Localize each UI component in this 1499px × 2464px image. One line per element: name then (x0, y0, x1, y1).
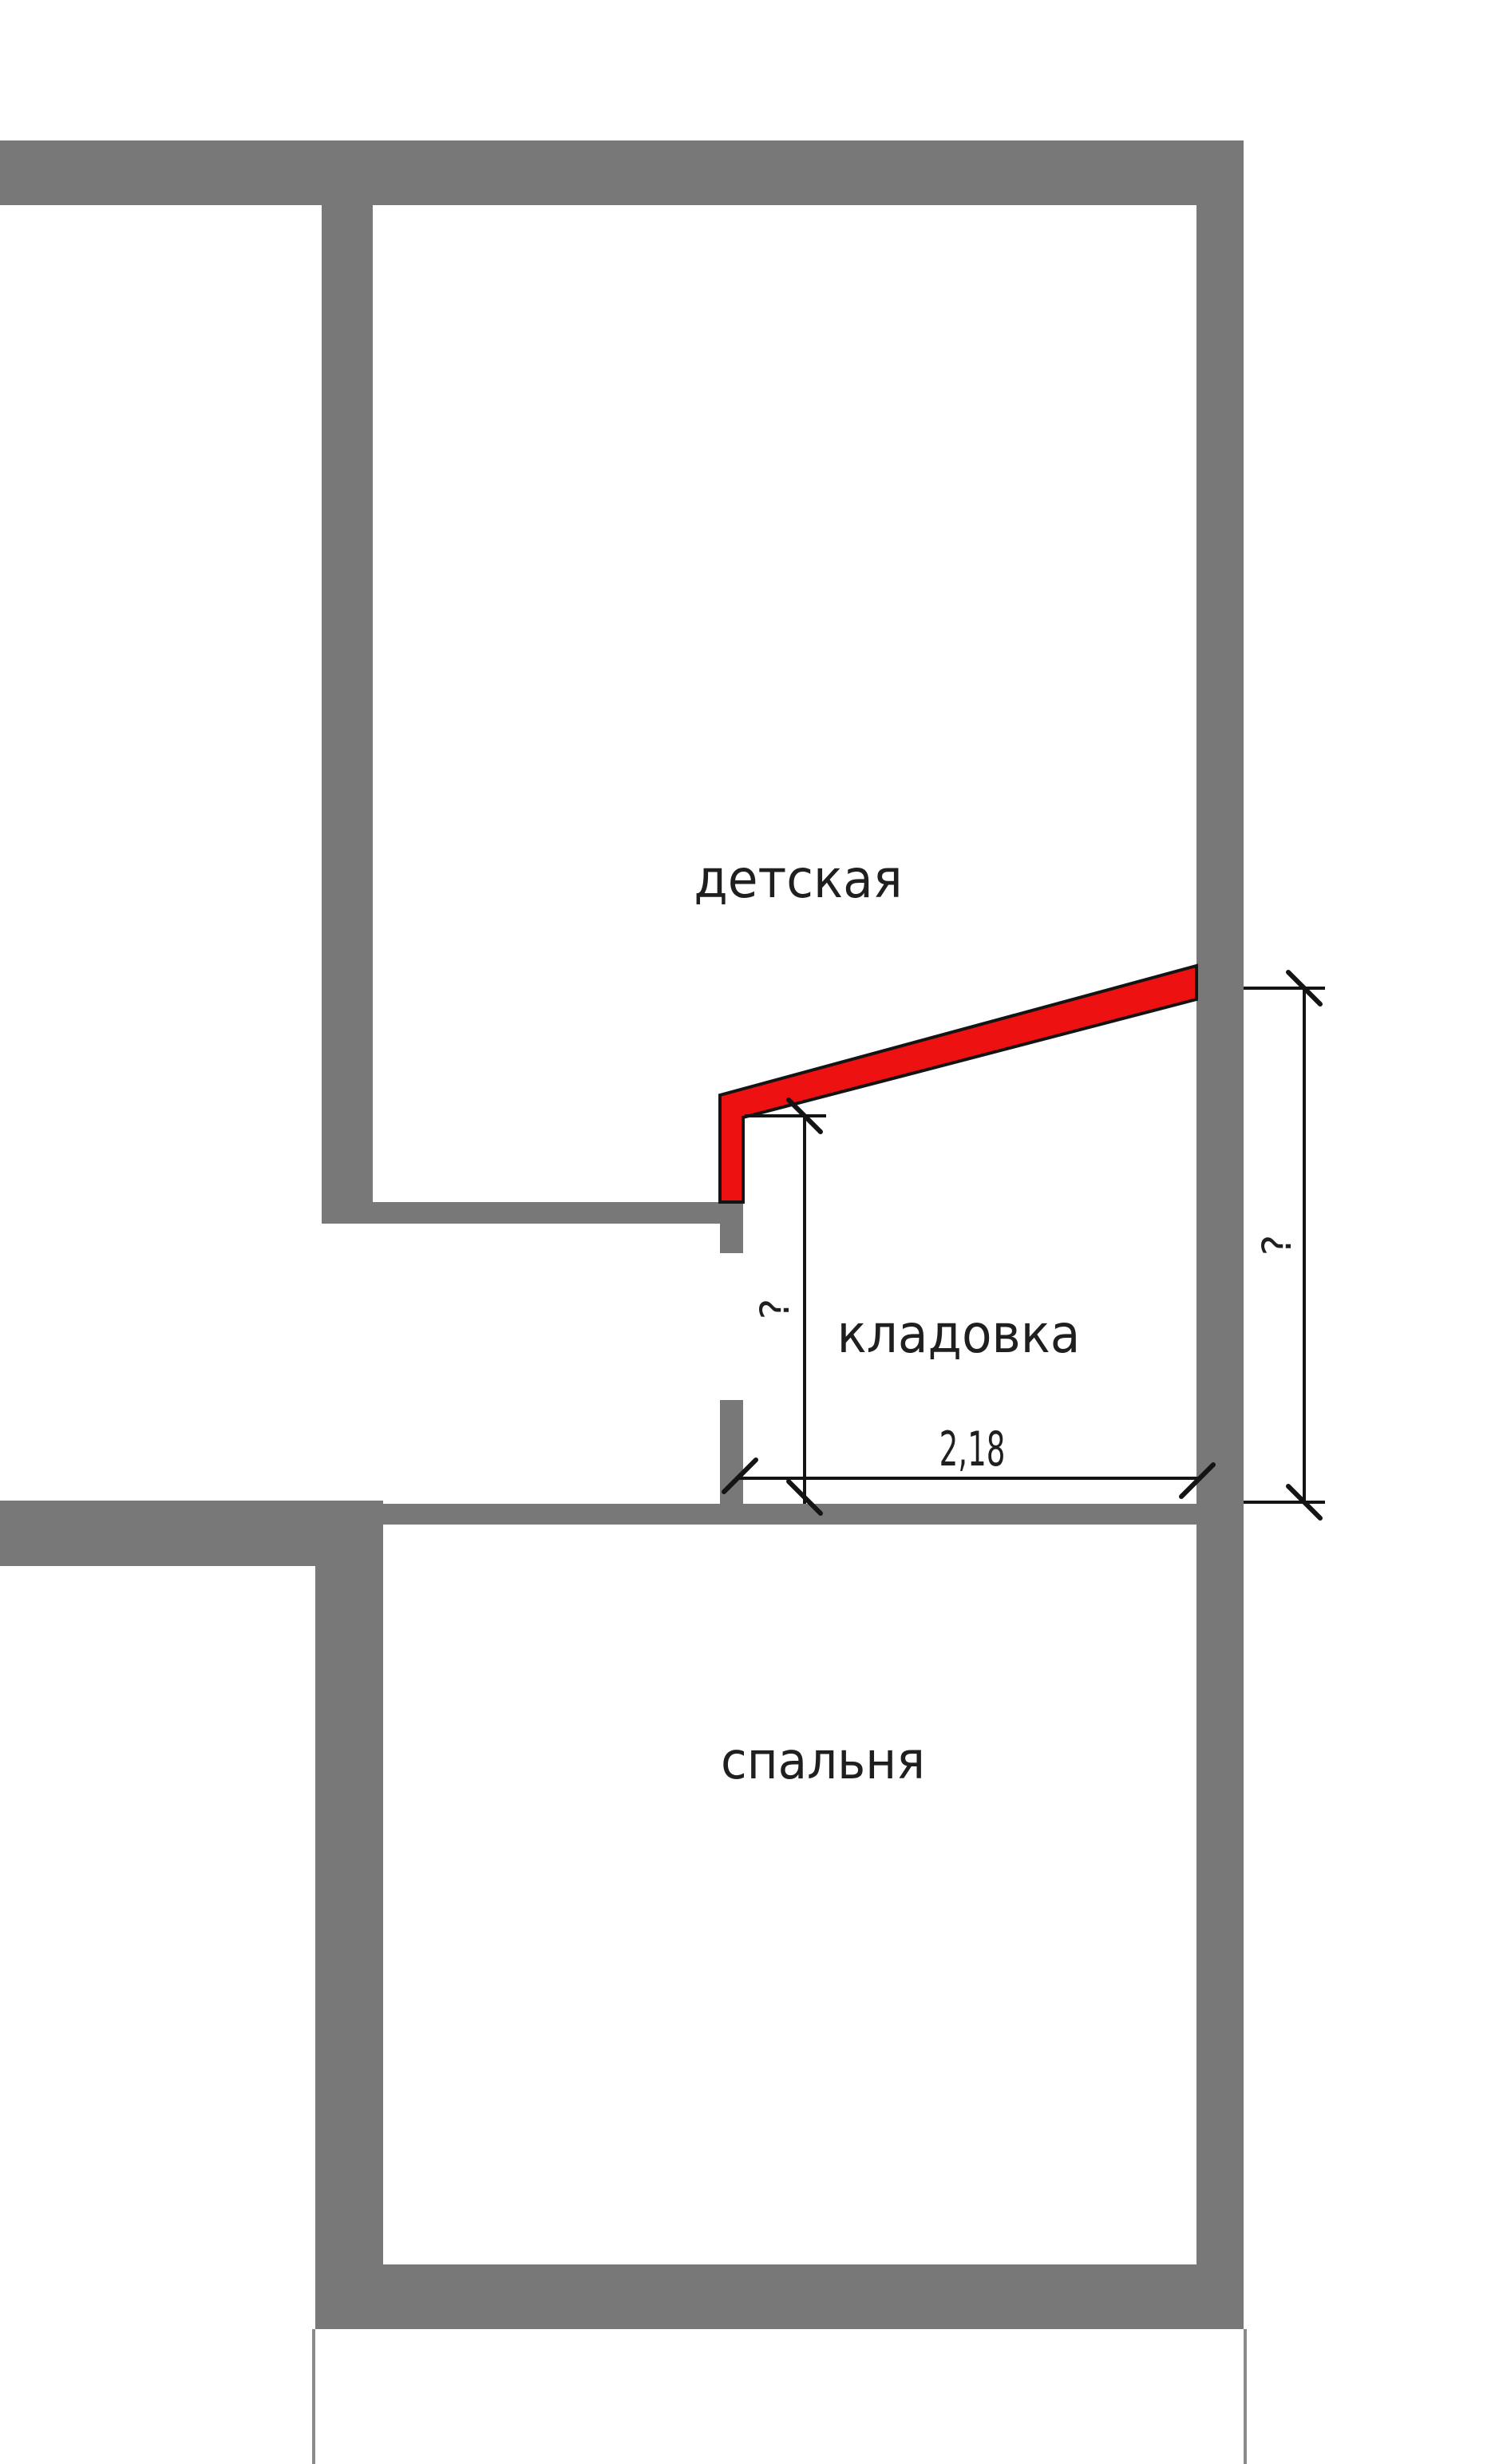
room-label-storage: кладовка (837, 1308, 1081, 1361)
floor-plan-drawing (0, 0, 1499, 2464)
right-exterior-wall (1196, 140, 1244, 2329)
bedroom-left-wall (315, 1501, 383, 2329)
floor-plan: детская кладовка спальня 2,18 ? ? (0, 0, 1499, 2464)
hall-bottom-wall (381, 1504, 1203, 1525)
top-exterior-wall (0, 140, 1244, 205)
room-label-bedroom: спальня (721, 1736, 925, 1787)
bedroom-bottom-wall (315, 2264, 1244, 2329)
dimension-label-right-height-unknown: ? (1257, 1235, 1297, 1256)
below-plan-line-left (312, 2329, 315, 2464)
room-label-nursery: детская (694, 853, 902, 906)
dimension-label-left-height-unknown: ? (755, 1299, 795, 1320)
nursery-bottom-wall (322, 1202, 743, 1224)
moved-wall-highlight (720, 966, 1196, 1202)
dimension-label-storage-width: 2,18 (939, 1426, 1006, 1473)
nursery-left-wall (322, 205, 373, 1224)
door-jamb-upper (720, 1224, 743, 1253)
below-plan-line-right (1244, 2329, 1247, 2464)
left-exterior-wall-segment (0, 1501, 315, 1566)
